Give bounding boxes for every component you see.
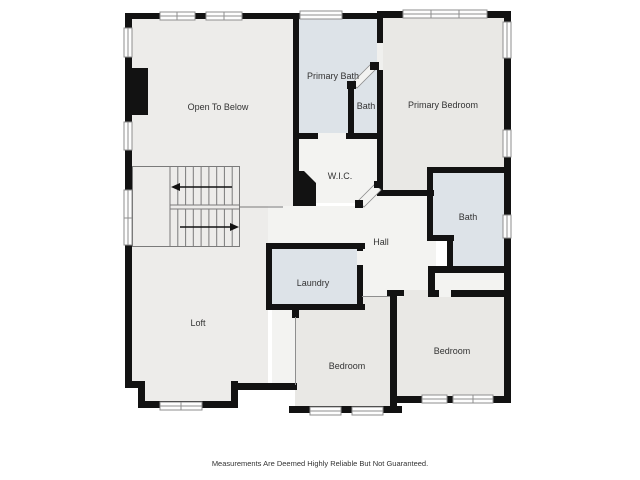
window [160,402,202,410]
disclaimer-text: Measurements Are Deemed Highly Reliable … [212,459,428,468]
window [503,22,511,58]
closet-corridor [435,273,504,290]
window [206,12,242,20]
window [310,407,341,415]
room-bedroom-left [295,296,397,410]
window [503,130,511,157]
closet-strip [272,309,295,385]
label-bedroom-right: Bedroom [434,346,471,356]
window [422,395,447,403]
window [352,407,383,415]
window [160,12,195,20]
room-laundry [272,249,357,304]
label-bath-small: Bath [357,101,376,111]
window [124,122,132,150]
chimney [132,68,148,115]
wic-door-gap [318,133,346,139]
room-bedroom-right [397,290,507,399]
label-wic: W.I.C. [328,171,353,181]
bedroom-right-door-gap [439,290,451,297]
label-open-to-below: Open To Below [188,102,249,112]
laundry-door-gap [357,251,363,265]
label-laundry: Laundry [297,278,330,288]
label-bath-right: Bath [459,212,478,222]
window [503,215,511,238]
label-loft: Loft [190,318,206,328]
window [124,28,132,57]
window [300,11,342,19]
label-primary-bedroom: Primary Bedroom [408,100,478,110]
window [453,395,493,403]
floor-plan-page: Open To Below Primary Bath Bath Primary … [0,0,640,480]
window [403,10,487,18]
floor-plan-drawing: Open To Below Primary Bath Bath Primary … [0,0,640,480]
window [124,190,132,245]
label-primary-bath: Primary Bath [307,71,359,81]
label-hall: Hall [373,237,389,247]
label-bedroom-left: Bedroom [329,361,366,371]
